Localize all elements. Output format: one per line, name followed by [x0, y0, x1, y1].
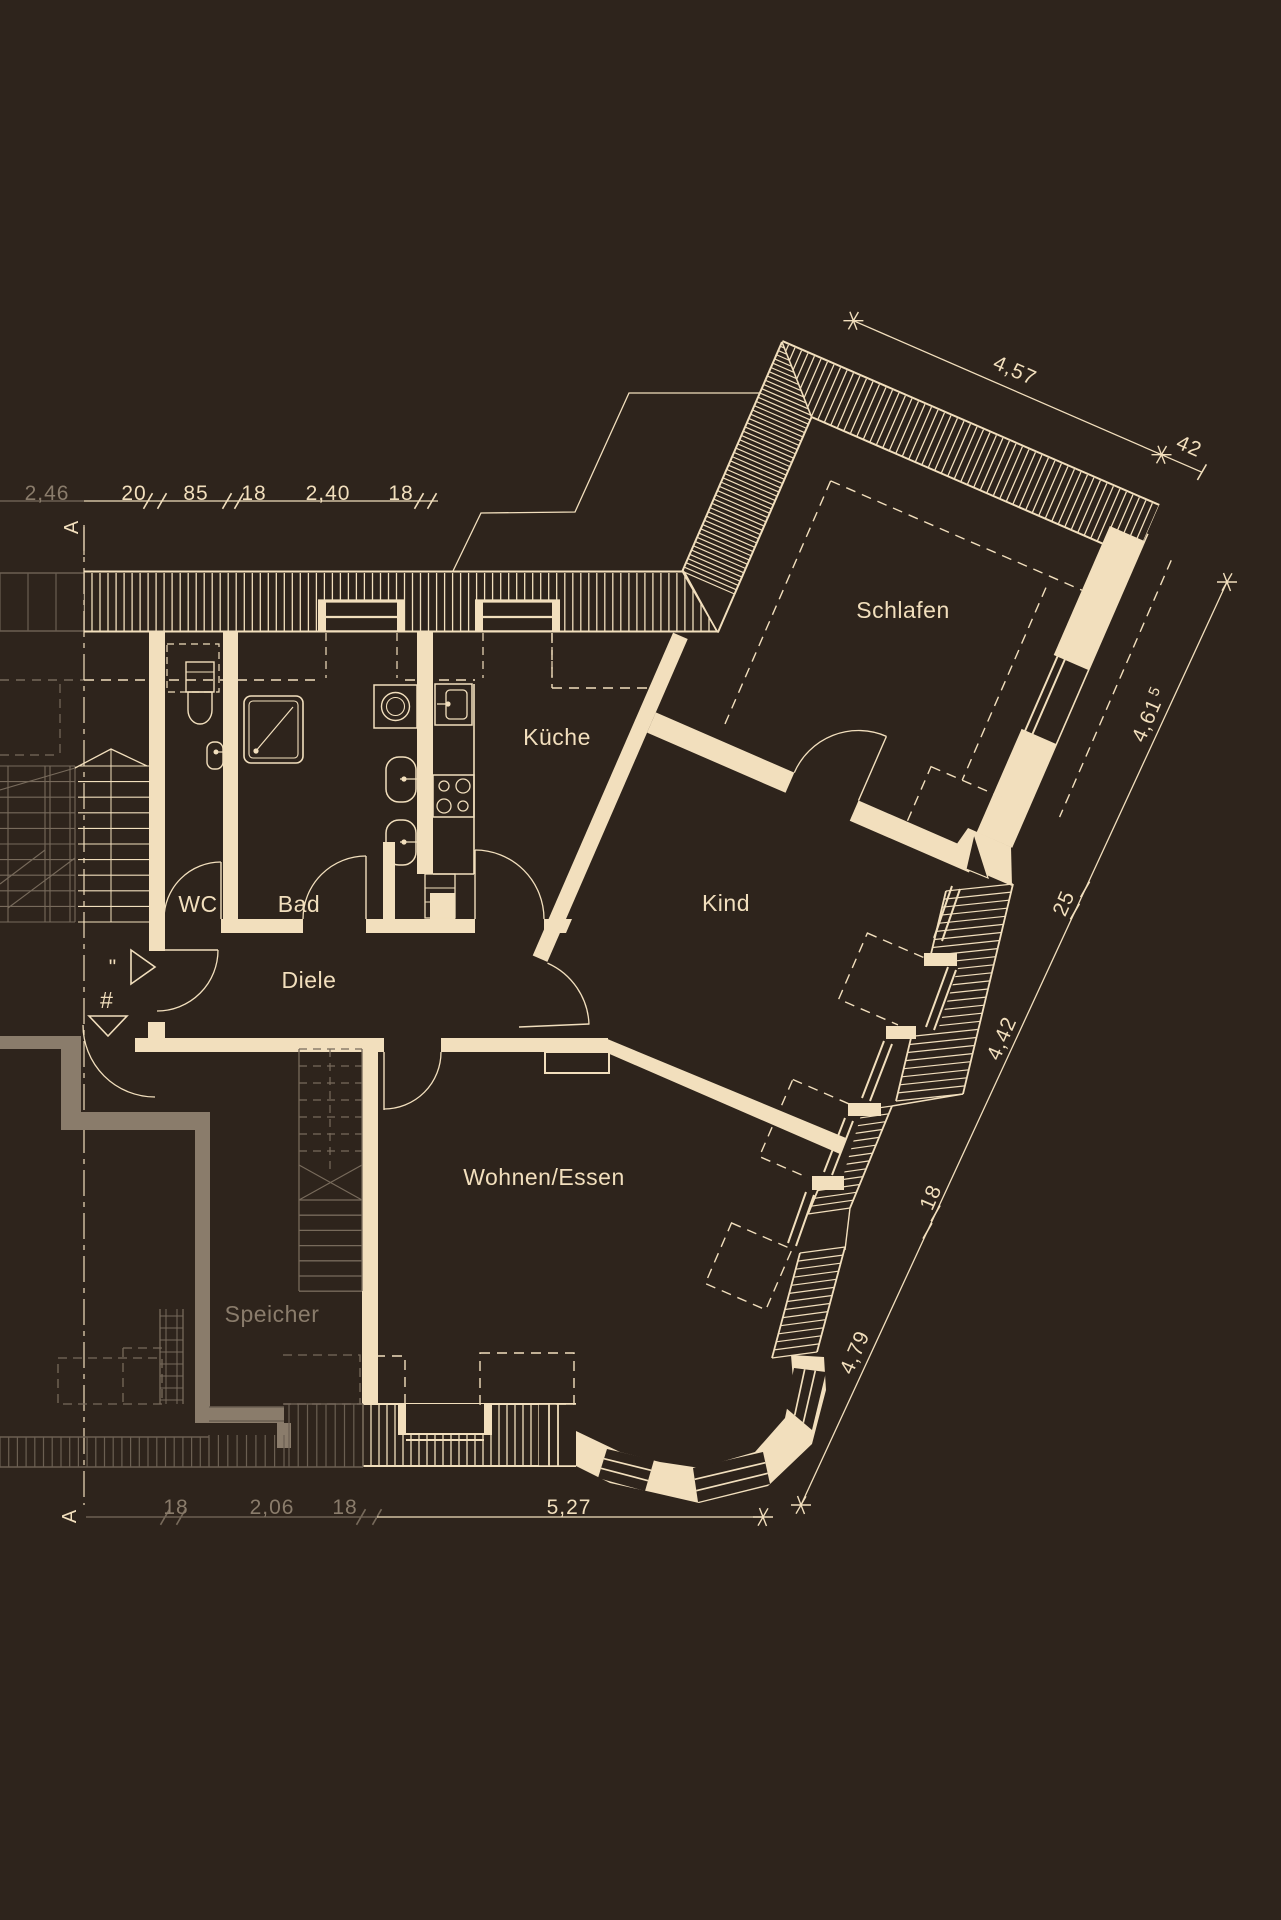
svg-text:WC: WC: [178, 891, 217, 917]
svg-text:Kind: Kind: [702, 890, 750, 916]
svg-text:Speicher: Speicher: [225, 1301, 320, 1327]
svg-text:2,06: 2,06: [250, 1496, 295, 1519]
svg-text:Wohnen/Essen: Wohnen/Essen: [463, 1164, 625, 1190]
svg-text:#: #: [100, 987, 114, 1013]
svg-text:2,40: 2,40: [306, 482, 351, 505]
svg-text:2,46: 2,46: [25, 482, 70, 505]
svg-text:": ": [109, 956, 117, 979]
svg-text:Küche: Küche: [523, 724, 591, 750]
svg-text:5,27: 5,27: [547, 1496, 592, 1519]
svg-text:Bad: Bad: [278, 891, 320, 917]
svg-text:Schlafen: Schlafen: [856, 597, 950, 623]
svg-text:A: A: [61, 520, 83, 534]
svg-text:18: 18: [163, 1496, 188, 1519]
svg-text:18: 18: [332, 1496, 357, 1519]
svg-text:18: 18: [241, 482, 266, 505]
svg-text:Diele: Diele: [282, 967, 337, 993]
svg-text:20: 20: [121, 482, 146, 505]
svg-text:18: 18: [388, 482, 413, 505]
svg-text:85: 85: [183, 482, 208, 505]
svg-text:A: A: [59, 1509, 81, 1523]
